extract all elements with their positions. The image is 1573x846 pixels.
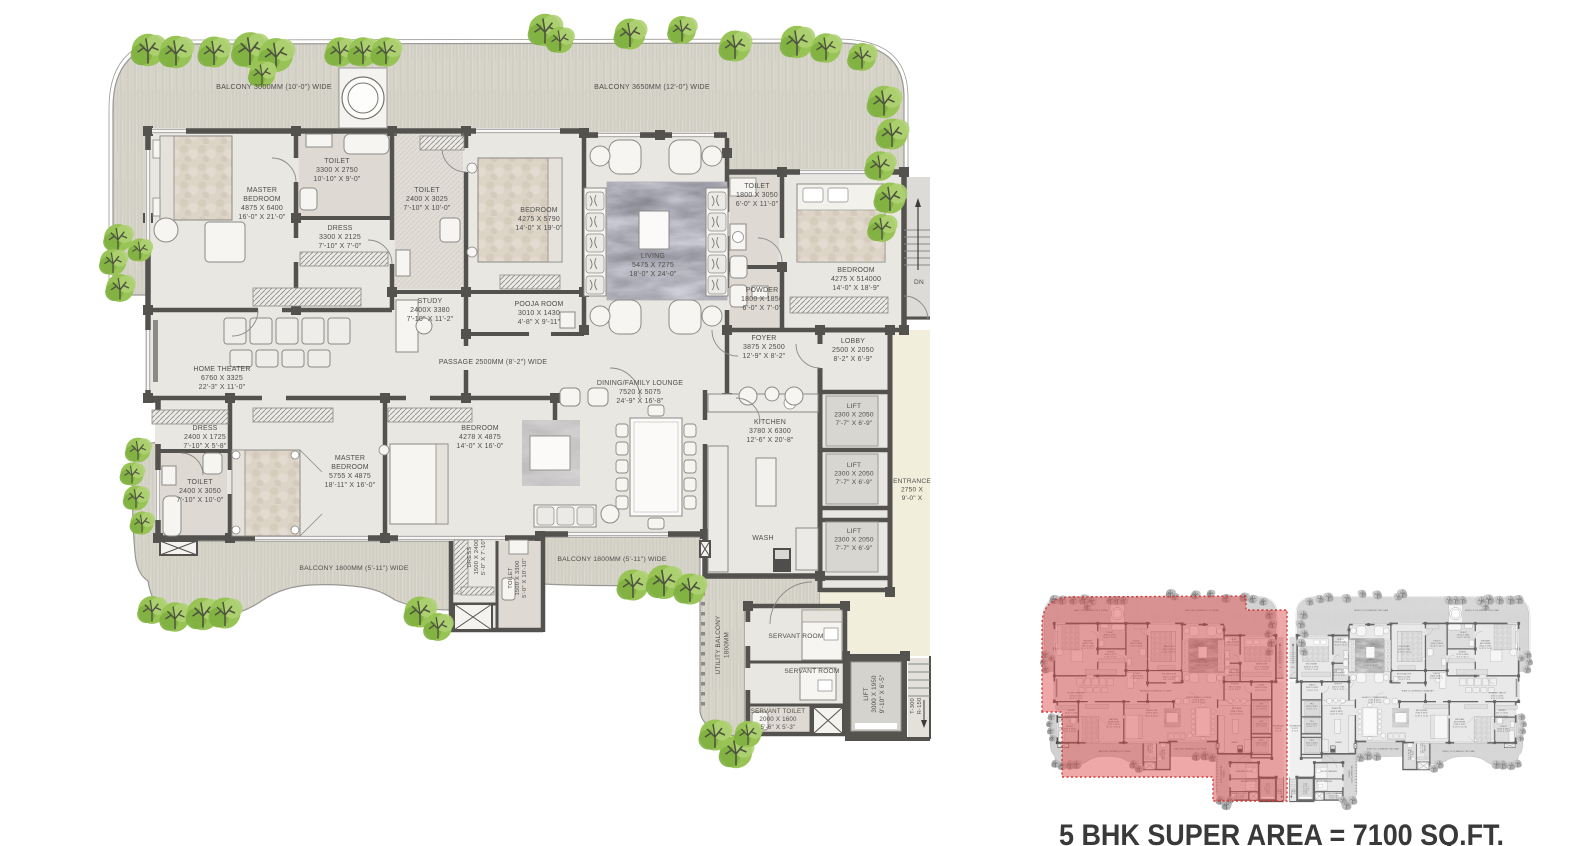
svg-text:BEDROOM4278 X 487514'-0" X 16': BEDROOM4278 X 487514'-0" X 16'-0" — [456, 425, 504, 450]
svg-text:BALCONY 1800MM (5'-11") WIDE: BALCONY 1800MM (5'-11") WIDE — [557, 556, 666, 563]
svg-text:POWDER1800 X 18506'-0" X 7'-0": POWDER1800 X 18506'-0" X 7'-0" — [741, 287, 783, 312]
svg-text:BEDROOM4275 X 51400014'-0" X 1: BEDROOM4275 X 51400014'-0" X 18'-9" — [831, 267, 881, 292]
svg-text:BALCONY 3650MM (12'-0") WIDE: BALCONY 3650MM (12'-0") WIDE — [594, 82, 710, 91]
svg-text:BALCONY 1800MM (5'-11") WIDE: BALCONY 1800MM (5'-11") WIDE — [299, 565, 408, 572]
svg-text:DN: DN — [914, 279, 924, 286]
svg-text:POOJA ROOM3010 X 14304'-8" X 9: POOJA ROOM3010 X 14304'-8" X 9'-11" — [514, 301, 563, 326]
svg-text:WASH: WASH — [752, 535, 774, 542]
svg-text:HOME THEATER6760 X 332522'-3": HOME THEATER6760 X 332522'-3" X 11'-0" — [193, 366, 250, 391]
svg-text:SERVANT ROOM: SERVANT ROOM — [768, 633, 823, 640]
svg-text:T-300R-150: T-300R-150 — [910, 698, 923, 715]
svg-text:BEDROOM4275 X 579014'-0" X 19': BEDROOM4275 X 579014'-0" X 19'-0" — [515, 207, 563, 232]
svg-text:BALCONY 3000MM (10'-0") WIDE: BALCONY 3000MM (10'-0") WIDE — [216, 82, 332, 91]
svg-text:5 BHK SUPER AREA = 7100 SQ.FT.: 5 BHK SUPER AREA = 7100 SQ.FT. — [1059, 819, 1504, 846]
svg-text:PASSAGE 2500MM (8'-2") WIDE: PASSAGE 2500MM (8'-2") WIDE — [439, 359, 547, 366]
svg-text:SERVANT ROOM: SERVANT ROOM — [784, 668, 839, 675]
